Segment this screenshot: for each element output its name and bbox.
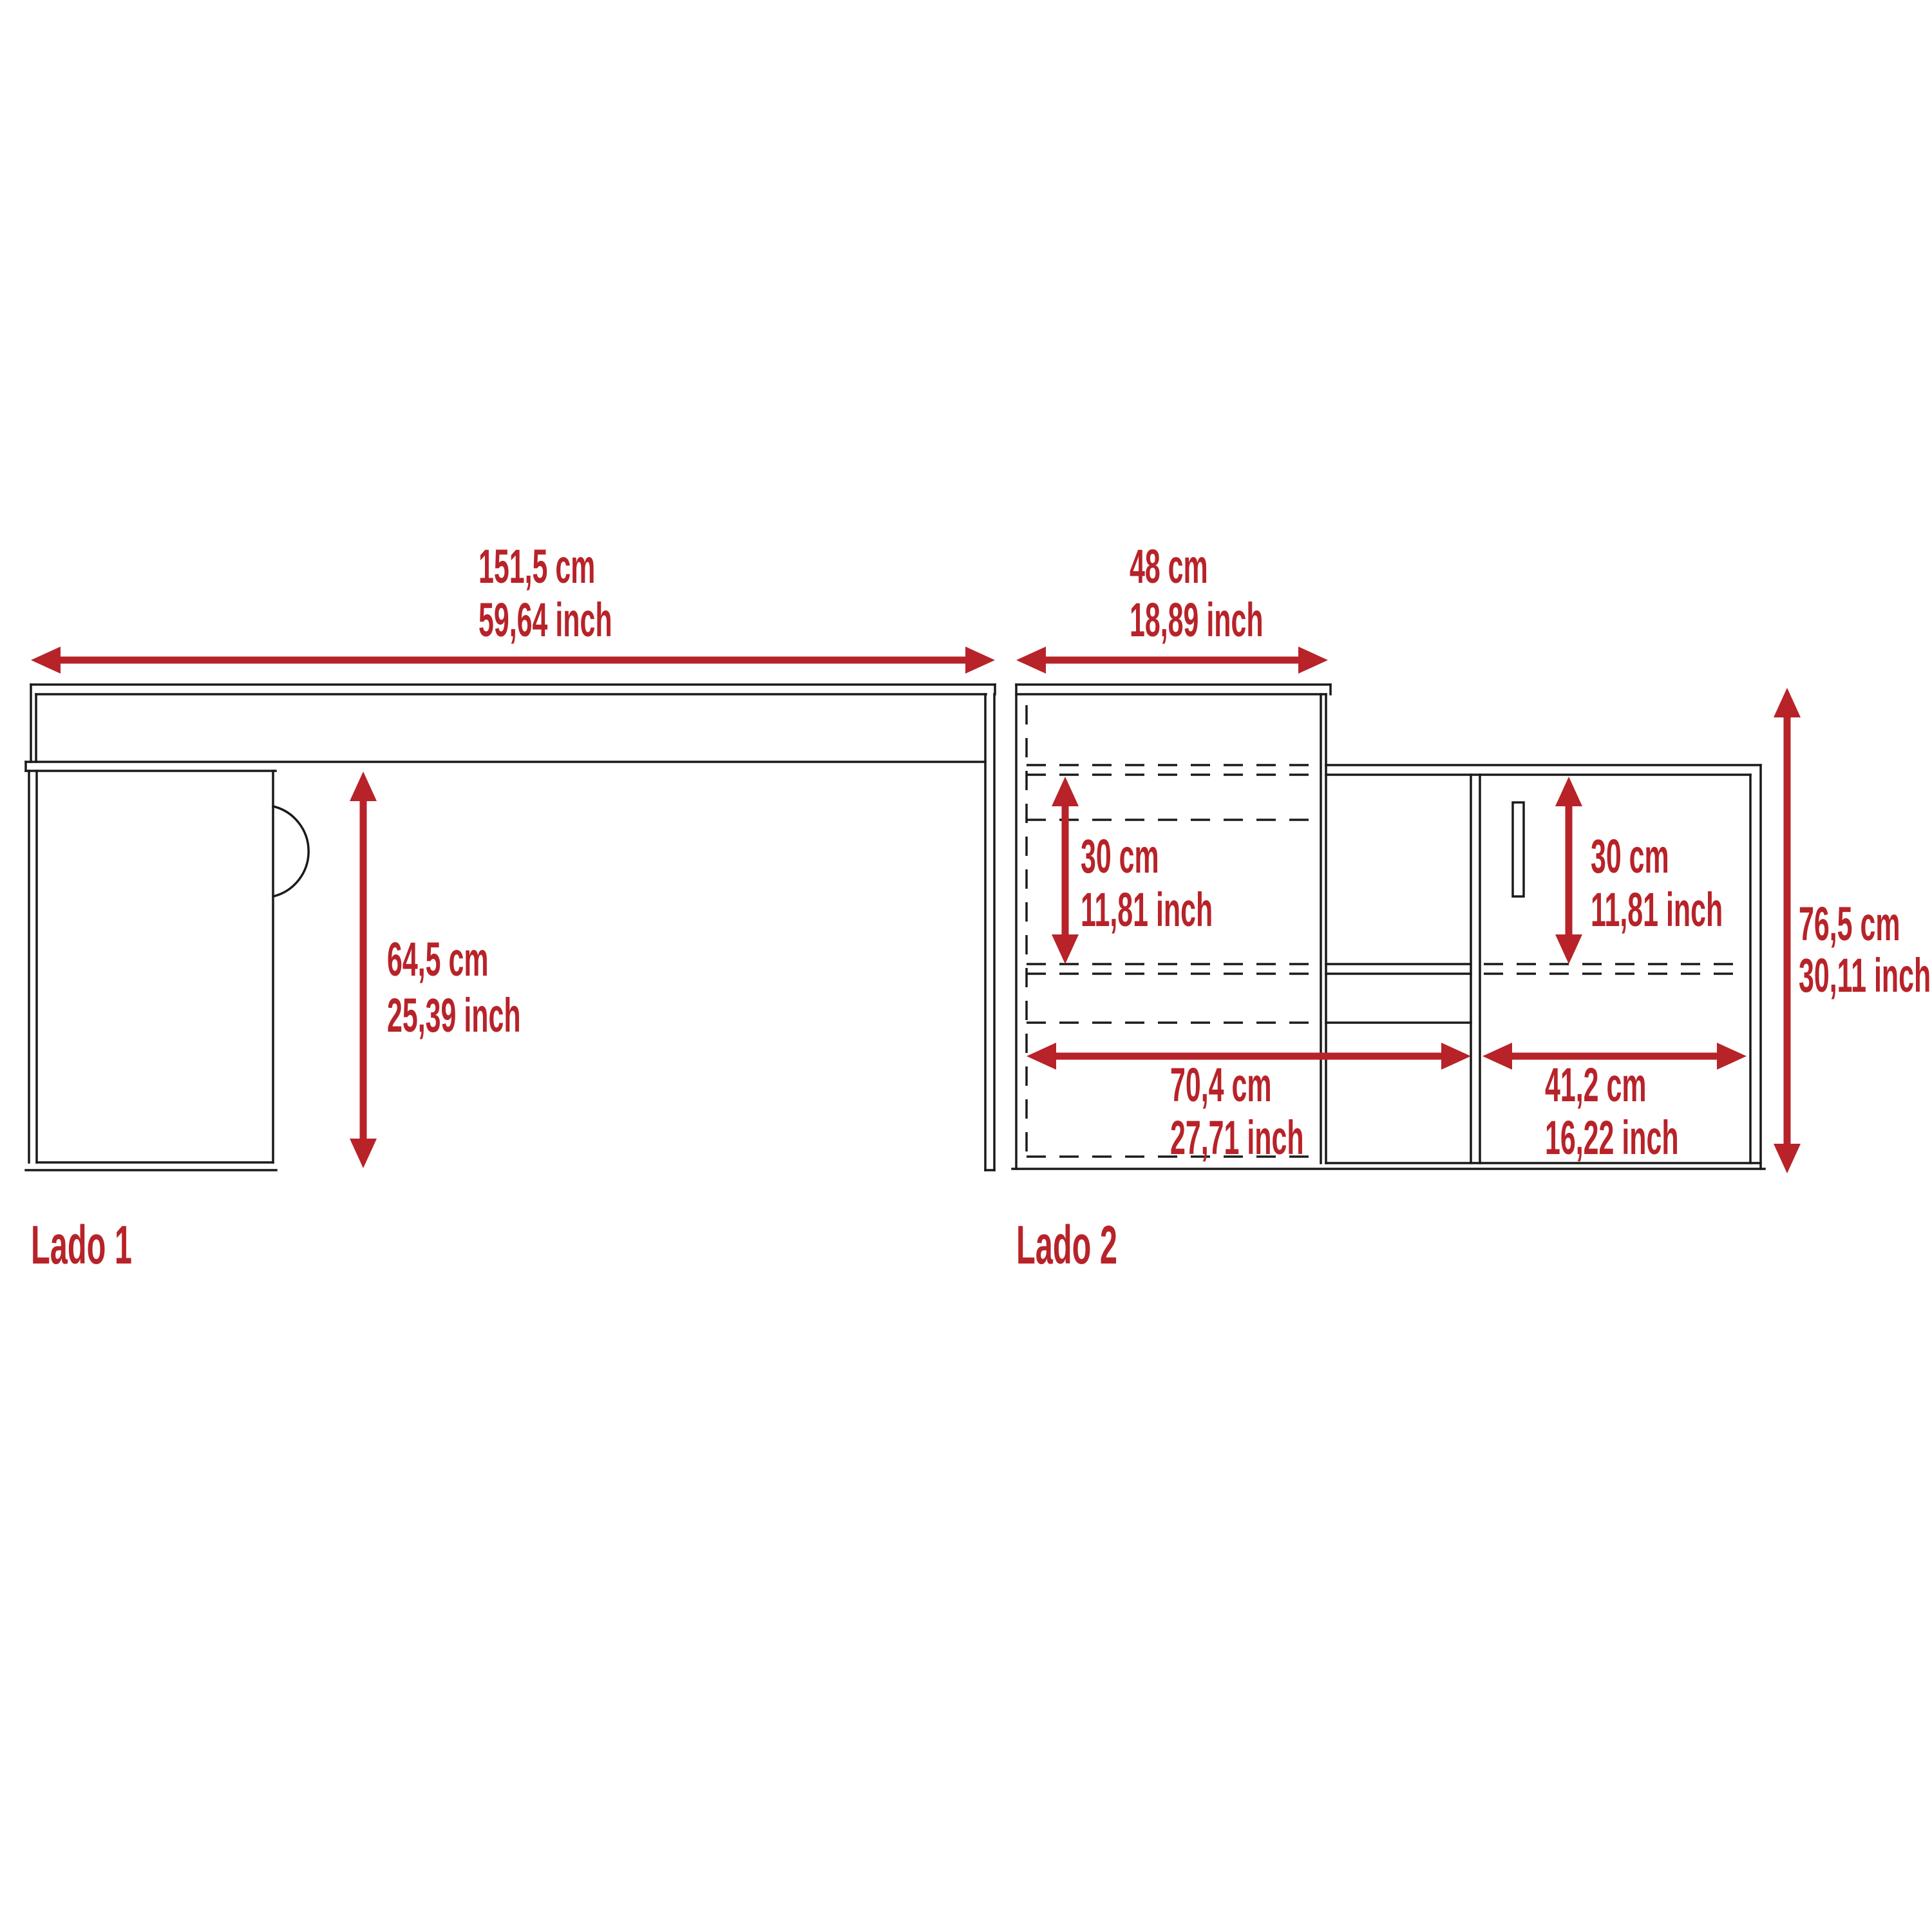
arrowhead-left xyxy=(1016,647,1046,674)
side1-width-dimension: 151,5 cm 59,64 inch xyxy=(31,540,995,674)
side2-total-height-dimension: 76,5 cm 30,11 inch xyxy=(1774,688,1931,1173)
side1-height-inch: 25,39 inch xyxy=(387,989,521,1042)
side2-label: Lado 2 xyxy=(1016,1215,1117,1275)
side2-total-height-cm: 76,5 cm xyxy=(1799,897,1900,951)
side2-right-30-inch: 11,81 inch xyxy=(1591,883,1723,936)
arrowhead-right xyxy=(1717,1043,1747,1070)
arrowhead-up xyxy=(1052,777,1079,806)
side1-width-inch: 59,64 inch xyxy=(478,593,612,647)
side1-width-cm: 151,5 cm xyxy=(478,540,595,593)
side2-door-compartment-dimension: 30 cm 11,81 inch xyxy=(1555,777,1723,964)
side2-hutch-width-cm: 48 cm xyxy=(1130,540,1208,593)
side2-hutch-width-inch: 18,89 inch xyxy=(1130,593,1264,647)
side2-door-width-inch: 16,22 inch xyxy=(1545,1111,1679,1164)
arrowhead-left xyxy=(31,647,61,674)
arrowhead-up xyxy=(1774,688,1801,717)
side2-left-30-inch: 11,81 inch xyxy=(1081,883,1213,936)
arrowhead-right xyxy=(1298,647,1328,674)
side2-door-handle xyxy=(1513,802,1524,896)
arrowhead-up xyxy=(350,772,377,801)
side2-left-width-cm: 70,4 cm xyxy=(1170,1058,1271,1112)
side1-label: Lado 1 xyxy=(31,1215,132,1275)
side2-door-width-dimension: 41,2 cm 16,22 inch xyxy=(1482,1043,1747,1164)
arrowhead-left xyxy=(1482,1043,1512,1070)
side1-height-dimension: 64,5 cm 25,39 inch xyxy=(350,772,521,1168)
side2-left-compartment-dimension: 30 cm 11,81 inch xyxy=(1052,777,1213,964)
side1-height-cm: 64,5 cm xyxy=(387,933,488,986)
arrowhead-down xyxy=(1555,934,1582,964)
side1-desk-drawing xyxy=(26,685,995,1170)
side1-door-handle-arc xyxy=(273,806,308,896)
side2-right-30-cm: 30 cm xyxy=(1591,829,1669,883)
arrowhead-down xyxy=(1052,934,1079,964)
arrowhead-up xyxy=(1555,777,1582,806)
side2-left-30-cm: 30 cm xyxy=(1081,829,1159,883)
arrowhead-right xyxy=(965,647,995,674)
side2-door-width-cm: 41,2 cm xyxy=(1545,1058,1646,1112)
side2-hutch-width-dimension: 48 cm 18,89 inch xyxy=(1016,540,1328,674)
side2-total-height-inch: 30,11 inch xyxy=(1799,949,1931,1002)
arrowhead-left xyxy=(1027,1043,1056,1070)
arrowhead-down xyxy=(350,1139,377,1168)
side2-left-width-dimension: 70,4 cm 27,71 inch xyxy=(1027,1043,1471,1164)
furniture-dimension-diagram: 151,5 cm 59,64 inch 64,5 cm 25,39 inch L… xyxy=(0,0,1932,1932)
arrowhead-down xyxy=(1774,1144,1801,1173)
side2-left-width-inch: 27,71 inch xyxy=(1170,1111,1304,1164)
arrowhead-right xyxy=(1441,1043,1471,1070)
